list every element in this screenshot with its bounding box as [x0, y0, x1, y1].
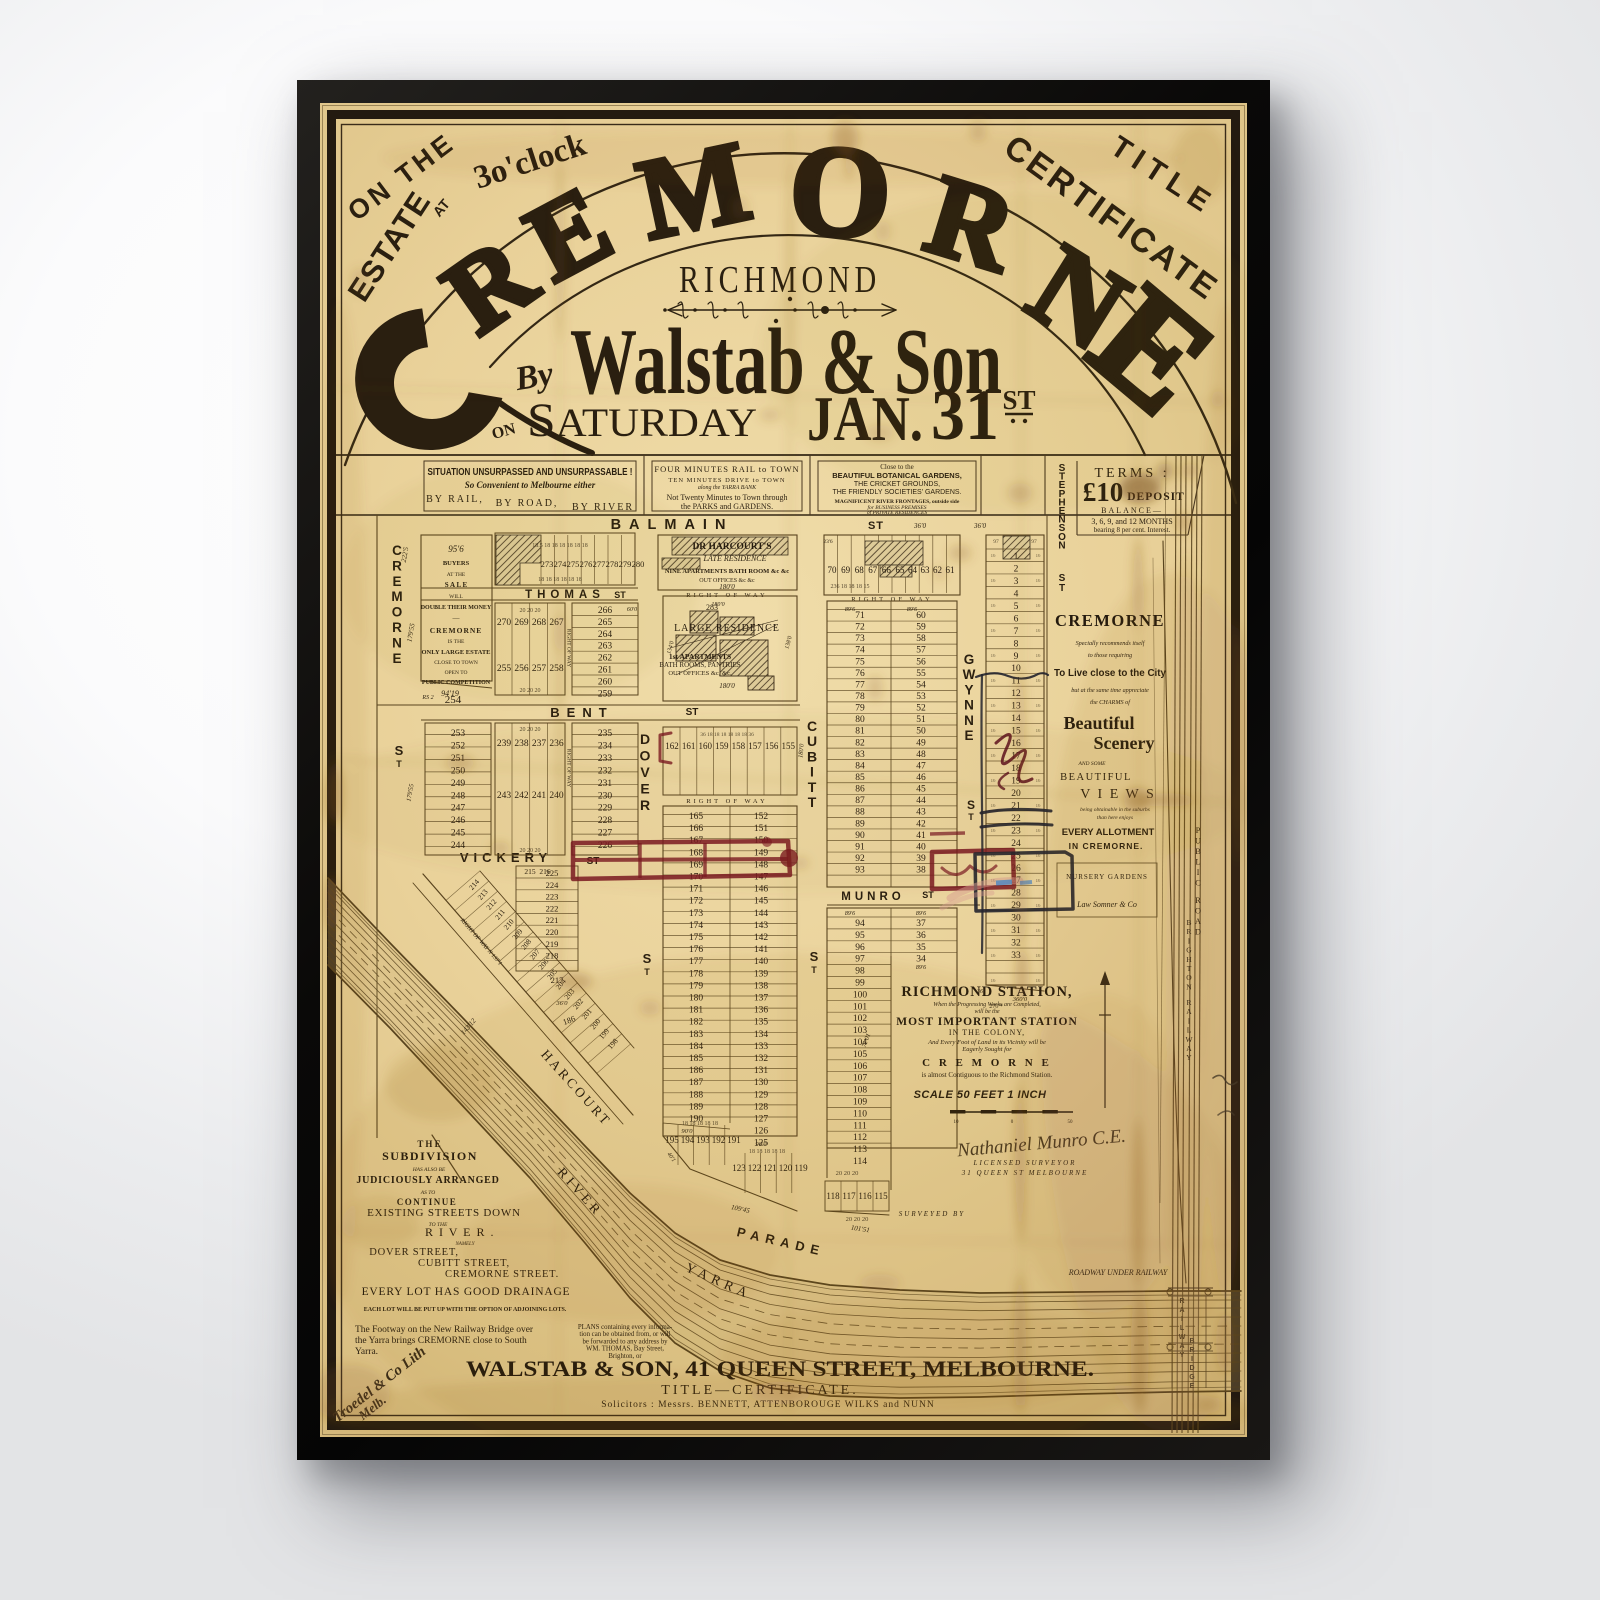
svg-text:16: 16: [1036, 579, 1041, 584]
svg-text:1: 1: [1014, 552, 1019, 562]
svg-text:S: S: [643, 951, 652, 966]
svg-text:5: 5: [1014, 602, 1019, 612]
svg-text:W: W: [963, 667, 976, 682]
svg-text:52: 52: [916, 704, 926, 714]
svg-text:BATH ROOMS, PANTRIES: BATH ROOMS, PANTRIES: [659, 661, 740, 669]
svg-text:BALANCE—: BALANCE—: [1101, 506, 1163, 515]
svg-text:174: 174: [689, 921, 704, 931]
svg-text:95: 95: [855, 931, 865, 941]
svg-text:145: 145: [754, 897, 769, 907]
svg-text:16: 16: [991, 629, 996, 634]
svg-text:ON: ON: [490, 420, 518, 443]
svg-text:T: T: [1059, 583, 1065, 594]
svg-text:16: 16: [1036, 954, 1041, 959]
svg-text:68: 68: [855, 565, 865, 575]
svg-text:94: 94: [855, 919, 865, 929]
svg-text:57: 57: [916, 646, 926, 656]
svg-text:144: 144: [754, 909, 769, 919]
svg-text:16: 16: [991, 604, 996, 609]
svg-text:56: 56: [916, 657, 926, 667]
svg-text:1st APARTMENTS: 1st APARTMENTS: [669, 652, 731, 661]
svg-text:69: 69: [841, 565, 851, 575]
svg-text:16: 16: [991, 954, 996, 959]
svg-text:16: 16: [991, 554, 996, 559]
svg-text:LARGE RESIDENCE: LARGE RESIDENCE: [674, 623, 780, 634]
svg-text:218: 218: [546, 951, 559, 961]
svg-text:143: 143: [754, 921, 769, 931]
svg-text:23'6: 23'6: [823, 539, 832, 545]
svg-text:66: 66: [882, 565, 892, 575]
svg-text:3, 6, 9, and 12 MONTHS: 3, 6, 9, and 12 MONTHS: [1091, 517, 1172, 526]
svg-text:236 18 18 18 15: 236 18 18 18 15: [831, 584, 870, 590]
svg-text:7: 7: [1014, 627, 1019, 637]
svg-text:89'6: 89'6: [845, 607, 855, 613]
svg-text:bearing 8 per cent. Interest.: bearing 8 per cent. Interest.: [1094, 526, 1171, 534]
svg-text:16: 16: [991, 679, 996, 684]
svg-text:54: 54: [916, 680, 926, 690]
svg-text:180'0: 180'0: [711, 602, 724, 608]
svg-text:of PRIVATE RESIDENCES: of PRIVATE RESIDENCES: [867, 509, 927, 516]
svg-text:176: 176: [689, 945, 704, 955]
svg-text:79: 79: [855, 704, 865, 714]
svg-text:180'0: 180'0: [719, 682, 735, 690]
svg-text:SATURDAY: SATURDAY: [527, 394, 757, 447]
svg-text:210: 210: [502, 917, 516, 932]
svg-text:89'6: 89'6: [845, 911, 855, 917]
svg-text:G: G: [964, 652, 975, 667]
svg-text:96: 96: [855, 943, 865, 953]
svg-text:37: 37: [916, 919, 926, 929]
svg-text:9: 9: [1014, 652, 1019, 662]
svg-text:175: 175: [689, 933, 704, 943]
svg-text:16: 16: [991, 654, 996, 659]
svg-text:16: 16: [1036, 929, 1041, 934]
svg-text:RS 2: RS 2: [421, 695, 433, 701]
svg-text:74: 74: [855, 646, 865, 656]
svg-text:AT: AT: [429, 196, 453, 220]
svg-text:16: 16: [1036, 629, 1041, 634]
svg-text:65: 65: [896, 565, 906, 575]
svg-text:34: 34: [916, 955, 926, 965]
svg-text:36: 36: [916, 931, 926, 941]
svg-text:4: 4: [1014, 589, 1019, 599]
svg-text:3: 3: [1014, 577, 1019, 587]
svg-text:16: 16: [1036, 654, 1041, 659]
svg-text:78: 78: [855, 692, 865, 702]
svg-text:212: 212: [484, 897, 498, 912]
svg-text:67: 67: [868, 565, 878, 575]
svg-text:MUNRO: MUNRO: [841, 891, 904, 903]
svg-text:89'6: 89'6: [916, 911, 926, 917]
svg-text:209: 209: [510, 927, 524, 942]
svg-text:16: 16: [1036, 554, 1041, 559]
svg-text:142: 142: [754, 933, 769, 943]
svg-text:60: 60: [916, 611, 926, 621]
svg-text:ST: ST: [922, 890, 934, 900]
svg-text:97: 97: [1031, 539, 1037, 545]
svg-text:FOUR MINUTES RAIL to TOWN: FOUR MINUTES RAIL to TOWN: [654, 464, 799, 474]
svg-text:OUT OFFICES &c, &c.: OUT OFFICES &c, &c.: [668, 670, 732, 677]
svg-text:16: 16: [1036, 704, 1041, 709]
svg-text:180'0: 180'0: [719, 583, 735, 591]
svg-text:16: 16: [991, 704, 996, 709]
svg-text:70: 70: [828, 565, 838, 575]
svg-text:36'0: 36'0: [913, 522, 926, 530]
svg-text:76: 76: [855, 669, 865, 679]
svg-text:Y: Y: [964, 682, 973, 697]
svg-text:173: 173: [689, 909, 704, 919]
svg-text:58: 58: [916, 634, 926, 644]
svg-text:Not Twenty Minutes to Town thr: Not Twenty Minutes to Town through: [666, 493, 787, 502]
svg-text:97: 97: [993, 539, 999, 545]
svg-text:259: 259: [598, 689, 613, 699]
svg-text:72: 72: [855, 623, 865, 633]
svg-text:DR HARCOURT'S: DR HARCOURT'S: [692, 542, 771, 552]
svg-text:along the YARRA BANK: along the YARRA BANK: [698, 485, 757, 491]
svg-text:16: 16: [991, 904, 996, 909]
svg-text:89'6: 89'6: [907, 607, 917, 613]
svg-text:211: 211: [493, 907, 507, 921]
svg-text:LATE RESIDENCE: LATE RESIDENCE: [702, 554, 766, 563]
svg-text:16: 16: [1036, 879, 1041, 884]
svg-text:71: 71: [855, 611, 865, 621]
svg-text:TEN MINUTES DRIVE to TOWN: TEN MINUTES DRIVE to TOWN: [668, 477, 785, 484]
svg-text:219: 219: [546, 939, 559, 949]
svg-text:8: 8: [1014, 639, 1019, 649]
svg-text:6: 6: [1014, 614, 1019, 624]
svg-text:16: 16: [991, 929, 996, 934]
svg-text:77: 77: [855, 680, 865, 690]
svg-text:64: 64: [908, 565, 918, 575]
svg-text:53: 53: [916, 692, 926, 702]
svg-text:55: 55: [916, 669, 926, 679]
svg-text:RIGHT OF WAY: RIGHT OF WAY: [851, 596, 932, 603]
svg-text:172: 172: [689, 897, 704, 907]
svg-text:N: N: [1058, 540, 1065, 551]
svg-text:73: 73: [855, 634, 865, 644]
svg-text:208: 208: [519, 937, 533, 952]
svg-text:ST: ST: [868, 520, 884, 532]
svg-text:16: 16: [1036, 604, 1041, 609]
svg-text:N: N: [964, 698, 974, 713]
svg-text:36'0: 36'0: [973, 522, 986, 530]
svg-text:the PARKS and GARDENS.: the PARKS and GARDENS.: [681, 502, 773, 511]
svg-text:16: 16: [991, 579, 996, 584]
svg-text:63: 63: [921, 565, 931, 575]
svg-text:59: 59: [916, 623, 926, 633]
svg-text:35: 35: [916, 943, 926, 953]
svg-text:61: 61: [946, 565, 955, 575]
svg-text:16: 16: [1036, 679, 1041, 684]
svg-text:2: 2: [1014, 564, 1019, 574]
svg-text:75: 75: [855, 657, 865, 667]
